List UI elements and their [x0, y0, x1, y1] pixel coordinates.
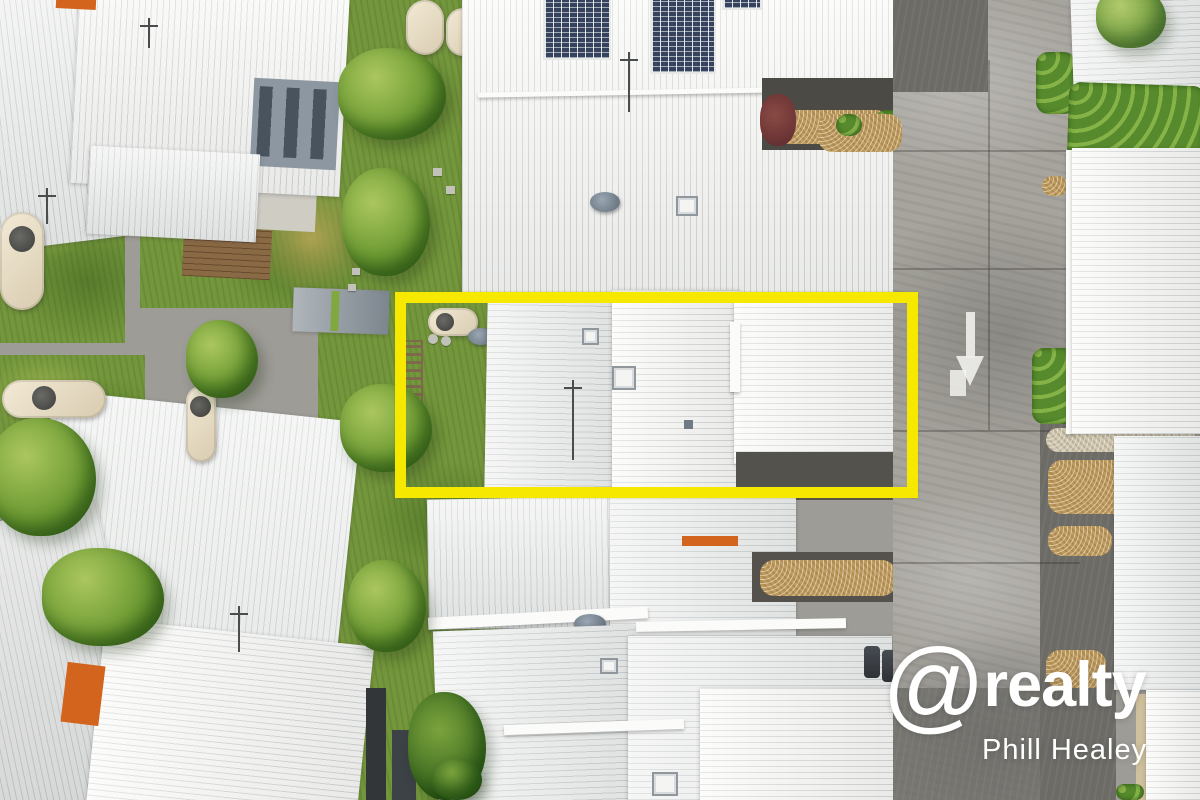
road-seam-vertical: [988, 60, 990, 430]
tree-7: [348, 560, 426, 652]
solar-panel-2: [652, 0, 714, 72]
stepping-stone-2: [348, 284, 356, 291]
red-plants: [760, 94, 796, 146]
tree-2: [342, 168, 430, 276]
tank-cap: [9, 226, 35, 252]
gravel-bed: [760, 560, 896, 596]
roof-vent-bottom-2: [600, 658, 618, 674]
palm-plant: [432, 758, 482, 800]
property-highlight-box: [395, 292, 918, 498]
tv-antenna-4: [238, 606, 240, 652]
at-symbol-icon: @: [882, 640, 984, 732]
road-marking-rect: [950, 370, 966, 396]
water-tank: [0, 212, 44, 310]
water-tank-3: [186, 386, 216, 462]
tv-antenna-3: [148, 18, 150, 48]
plants-bottom-right: [1116, 784, 1144, 800]
watermark: @realty Phill Healey: [882, 640, 1147, 767]
asphalt-top: [893, 0, 988, 92]
brand-name: realty: [984, 654, 1146, 717]
tree: [338, 48, 446, 140]
tv-antenna-2: [46, 188, 48, 224]
stepping-stone-4: [446, 186, 455, 194]
road-seam-2: [893, 268, 1080, 270]
satellite-dish-top: [590, 192, 620, 212]
gravel-dot: [1042, 176, 1068, 196]
roof-vent-bottom: [652, 772, 678, 796]
dark-window-strip: [366, 688, 386, 800]
aerial-photo: @realty Phill Healey: [0, 0, 1200, 800]
upper-windows: [256, 86, 334, 160]
solar-panel-3: [724, 0, 760, 8]
shed-roof-stripe: [330, 291, 339, 331]
tree-6: [42, 548, 164, 646]
solar-panel: [545, 0, 609, 58]
watermark-brand-row: @realty: [882, 640, 1147, 732]
roof-left-mid: [86, 146, 260, 243]
gravel-strip-right-2: [1048, 526, 1112, 556]
roof-bottom-left-lower: [86, 618, 374, 800]
agent-name: Phill Healey: [982, 734, 1147, 767]
water-tank-4: [406, 0, 444, 55]
roof-right-bottom: [1146, 690, 1200, 800]
road-seam: [893, 150, 1080, 152]
tank-cap: [190, 396, 211, 417]
roof-bottom-3: [700, 688, 900, 800]
wheelie-bin: [864, 646, 880, 678]
road-seam-4: [893, 562, 1080, 564]
road-arrow-stem: [966, 312, 975, 358]
roof-right-mid: [1072, 148, 1200, 434]
roof-vent-top: [676, 196, 698, 216]
tank-cap: [32, 386, 56, 410]
tree-3: [186, 320, 258, 398]
orange-roof-strip: [682, 536, 738, 546]
tv-antenna: [628, 52, 630, 112]
plants-left-edge: [836, 114, 862, 136]
orange-wall-panel: [60, 662, 105, 726]
water-tank-2: [2, 380, 106, 418]
stepping-stone-3: [433, 168, 442, 176]
stepping-stone: [352, 268, 360, 275]
shed-roof: [292, 287, 389, 334]
